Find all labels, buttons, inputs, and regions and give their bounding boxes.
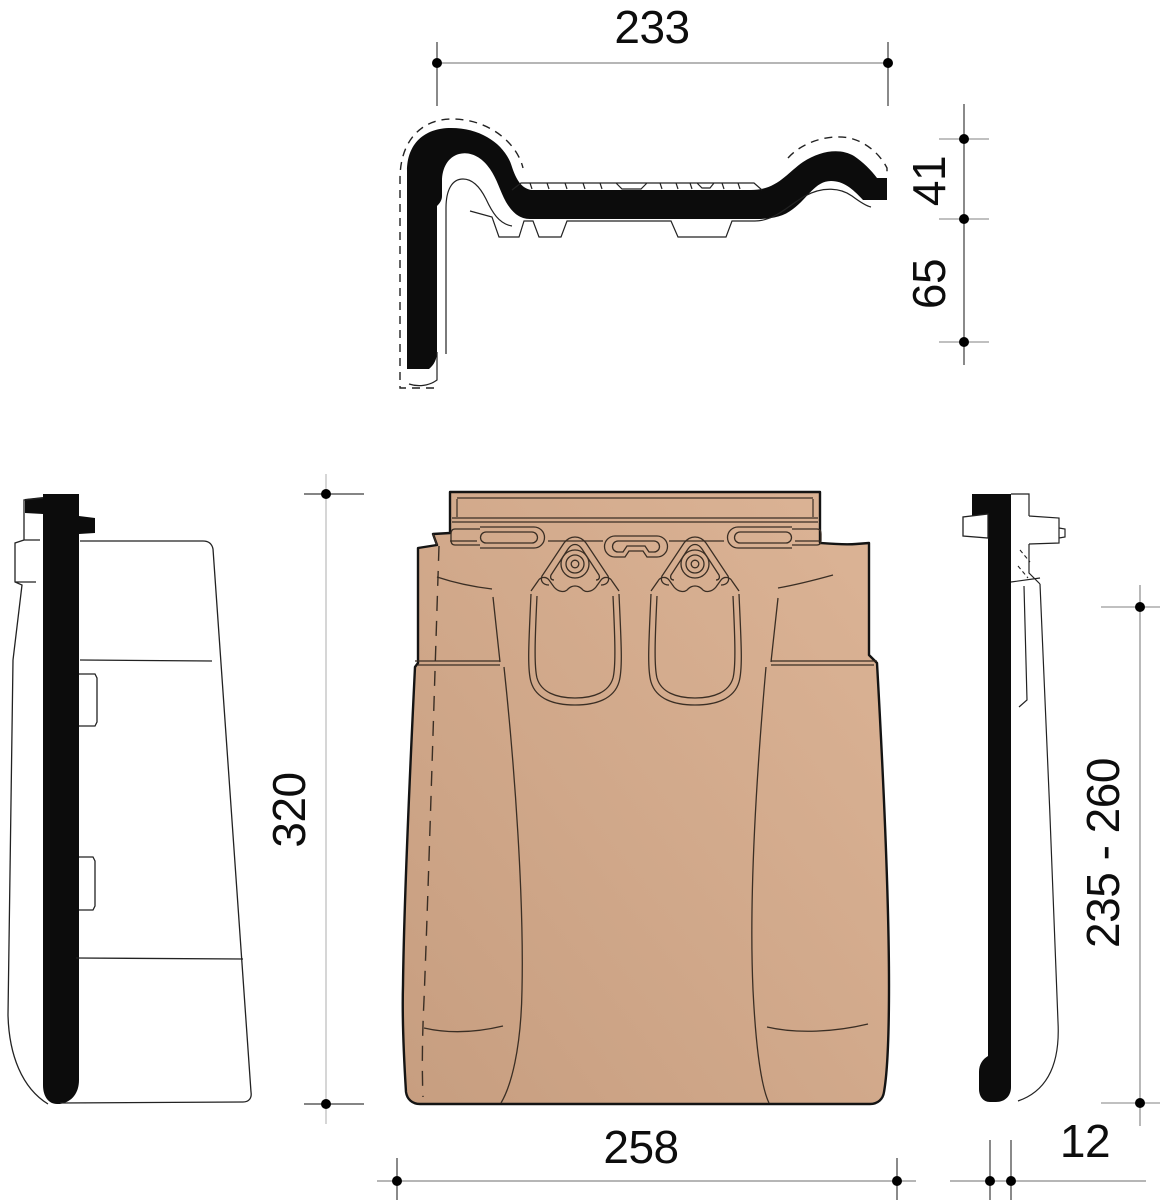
right-view-hidden-lines [1018, 550, 1030, 578]
right-view-outlines [1011, 494, 1065, 1101]
dim-marker [883, 58, 893, 68]
dim-label-overall-width: 258 [603, 1124, 678, 1170]
technical-drawing-canvas: 233 41 65 320 258 235 - 260 12 [0, 0, 1160, 1200]
dim-label-profile-height: 41 [906, 156, 952, 206]
profile-section-band [407, 128, 887, 369]
dim-flap-extensions [990, 1140, 1011, 1200]
left-view-flap-section [25, 494, 95, 1104]
dim-marker [432, 58, 442, 68]
right-view-flap-section [972, 494, 1011, 1102]
profile-section-view [400, 119, 887, 388]
dim-label-tile-length: 320 [266, 772, 312, 847]
dim-marker [1006, 1176, 1016, 1186]
dim-label-top-width: 233 [614, 4, 689, 50]
left-side-view [8, 494, 251, 1104]
dim-marker [959, 214, 969, 224]
dim-label-batten-gauge: 235 - 260 [1080, 758, 1126, 948]
roof-tile-drawing [0, 0, 1160, 1200]
tile-front-outline [403, 492, 889, 1104]
dim-marker [892, 1176, 902, 1186]
dim-marker [392, 1176, 402, 1186]
dim-marker [1135, 1098, 1145, 1108]
dim-marker [959, 337, 969, 347]
dim-marker [1135, 602, 1145, 612]
right-view-nose-tab [963, 514, 988, 538]
dim-label-side-flap-height: 65 [906, 259, 952, 309]
tile-front-view [403, 492, 889, 1104]
dim-marker [959, 134, 969, 144]
dim-marker [985, 1176, 995, 1186]
dim-label-flap-thickness: 12 [1060, 1118, 1110, 1164]
dim-marker [321, 489, 331, 499]
right-side-view [963, 494, 1065, 1102]
dim-marker [321, 1099, 331, 1109]
